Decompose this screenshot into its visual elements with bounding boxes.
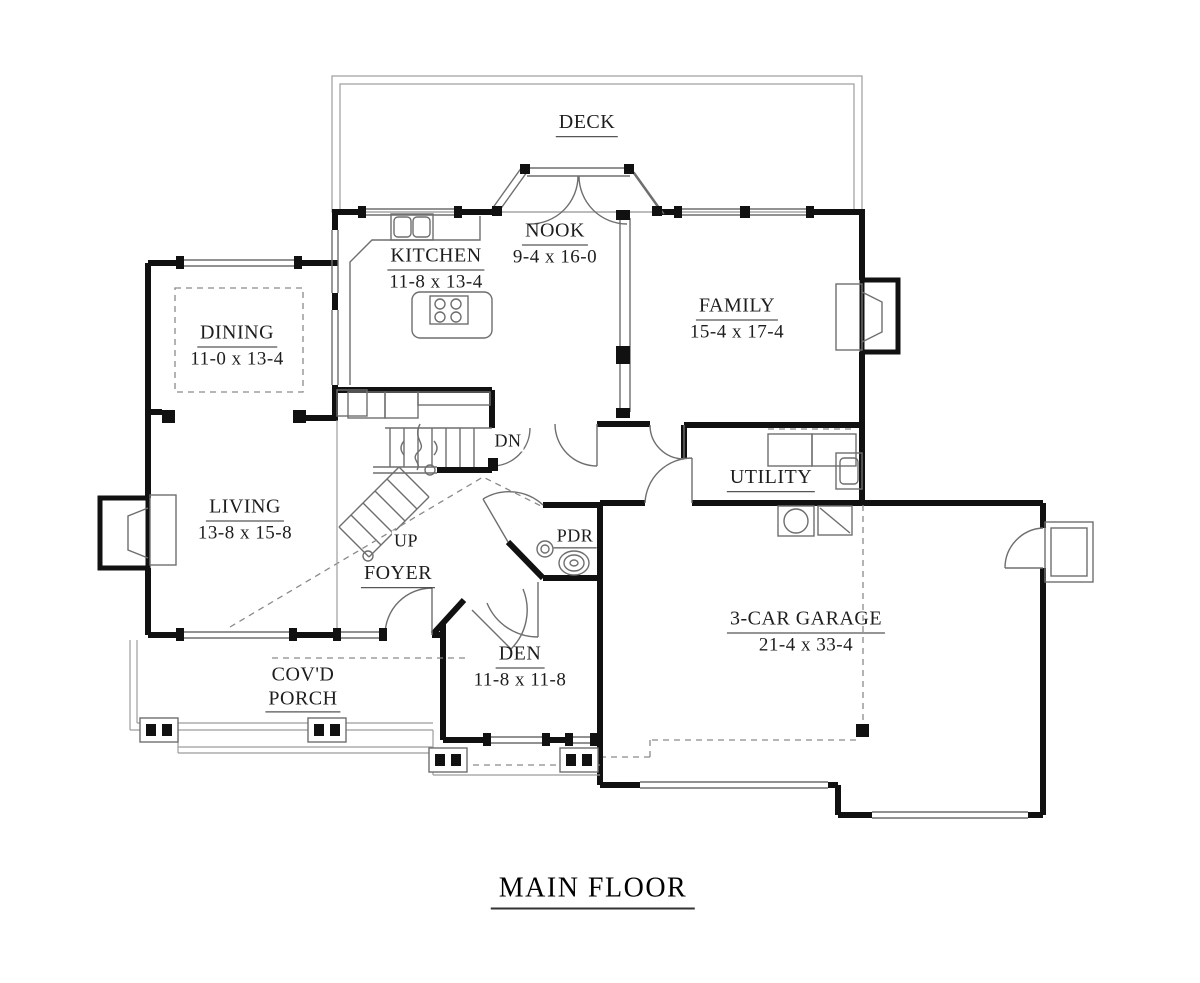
stair-down-label: DN	[493, 431, 524, 452]
floor-plan-linework	[0, 0, 1200, 983]
toilet	[559, 551, 589, 575]
plan-title: MAIN FLOOR	[491, 873, 695, 910]
living-dims: 13-8 x 15-8	[198, 522, 292, 544]
garage-dims: 21-4 x 33-4	[727, 634, 885, 656]
fireplace-living	[100, 495, 176, 568]
garage-stoop	[1045, 522, 1093, 582]
room-label-den: DEN 11-8 x 11-8	[474, 643, 567, 692]
stair-up-label: UP	[392, 531, 420, 552]
room-label-living: LIVING 13-8 x 15-8	[198, 496, 292, 545]
kitchen-dims: 11-8 x 13-4	[387, 271, 484, 293]
deck-name: DECK	[556, 111, 618, 137]
floor-plan: DECK NOOK 9-4 x 16-0 KITCHEN 11-8 x 13-4…	[0, 0, 1200, 983]
porch-name-line2: PORCH	[265, 687, 340, 713]
kitchen-island	[412, 292, 492, 338]
room-label-utility: UTILITY	[727, 466, 815, 492]
nook-name: NOOK	[522, 220, 588, 246]
deck-outline	[332, 76, 862, 212]
powder-name: PDR	[554, 525, 597, 548]
fireplace-family	[836, 280, 898, 352]
porch-posts	[140, 718, 598, 772]
garage-post	[856, 724, 869, 737]
room-label-garage: 3-CAR GARAGE 21-4 x 33-4	[727, 608, 885, 657]
room-label-foyer: FOYER	[361, 562, 435, 588]
room-label-dining: DINING 11-0 x 13-4	[190, 322, 283, 371]
washer-dryer	[778, 506, 852, 536]
den-name: DEN	[496, 643, 545, 669]
room-label-nook: NOOK 9-4 x 16-0	[513, 220, 597, 269]
garage-name: 3-CAR GARAGE	[727, 608, 885, 634]
porch-name-line1: COV'D	[265, 663, 340, 687]
porch-lines	[130, 420, 600, 775]
kitchen-name: KITCHEN	[387, 245, 484, 271]
room-label-kitchen: KITCHEN 11-8 x 13-4	[387, 245, 484, 294]
family-name: FAMILY	[696, 295, 778, 321]
room-label-porch: COV'D PORCH	[265, 663, 340, 712]
family-dims: 15-4 x 17-4	[690, 321, 784, 343]
nook-dims: 9-4 x 16-0	[513, 246, 597, 268]
powder-sink	[537, 541, 553, 557]
room-label-powder: PDR	[554, 525, 597, 548]
room-label-deck: DECK	[556, 111, 618, 137]
utility-name: UTILITY	[727, 466, 815, 492]
plan-title-text: MAIN FLOOR	[491, 873, 695, 910]
room-label-family: FAMILY 15-4 x 17-4	[690, 295, 784, 344]
foyer-name: FOYER	[361, 562, 435, 588]
living-name: LIVING	[206, 496, 284, 522]
dining-dims: 11-0 x 13-4	[190, 348, 283, 370]
den-dims: 11-8 x 11-8	[474, 669, 567, 691]
dining-name: DINING	[197, 322, 277, 348]
